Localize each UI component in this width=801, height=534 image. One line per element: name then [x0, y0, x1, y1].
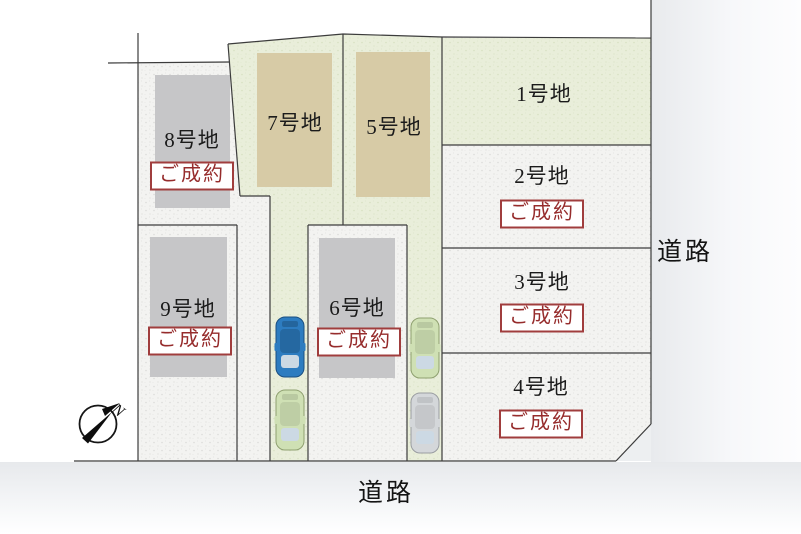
- lot-2-sold-badge: ご成約: [500, 200, 584, 229]
- lot-8-label: 8号地: [164, 124, 220, 154]
- lot-9-label: 9号地: [160, 293, 216, 323]
- car-green-2-icon: [410, 318, 441, 378]
- car-green-icon: [275, 390, 306, 450]
- lot-4-sold-badge: ご成約: [499, 410, 583, 439]
- lot-6-sold-badge: ご成約: [317, 328, 401, 357]
- road-bottom-label: 道路: [358, 473, 414, 509]
- car-silver-icon: [410, 393, 441, 453]
- lot-5-label: 5号地: [366, 111, 422, 141]
- lot-6-label: 6号地: [329, 292, 385, 322]
- compass-icon: N: [80, 400, 129, 443]
- lot-9-sold-badge: ご成約: [148, 327, 232, 356]
- lot-4-label: 4号地: [513, 371, 569, 401]
- lot-2-label: 2号地: [514, 160, 570, 190]
- lot-3-label: 3号地: [514, 266, 570, 296]
- site-plan: N 1号地 2号地 3号地 4号地 5号地 6号地 7号地 8号地 9号地 ご成…: [0, 0, 801, 534]
- road-right-label: 道路: [657, 232, 713, 268]
- lot-7-label: 7号地: [267, 107, 323, 137]
- lot-8-sold-badge: ご成約: [150, 162, 234, 191]
- car-blue-icon: [275, 317, 306, 377]
- lot-1-label: 1号地: [516, 78, 572, 108]
- lot-3-sold-badge: ご成約: [500, 304, 584, 333]
